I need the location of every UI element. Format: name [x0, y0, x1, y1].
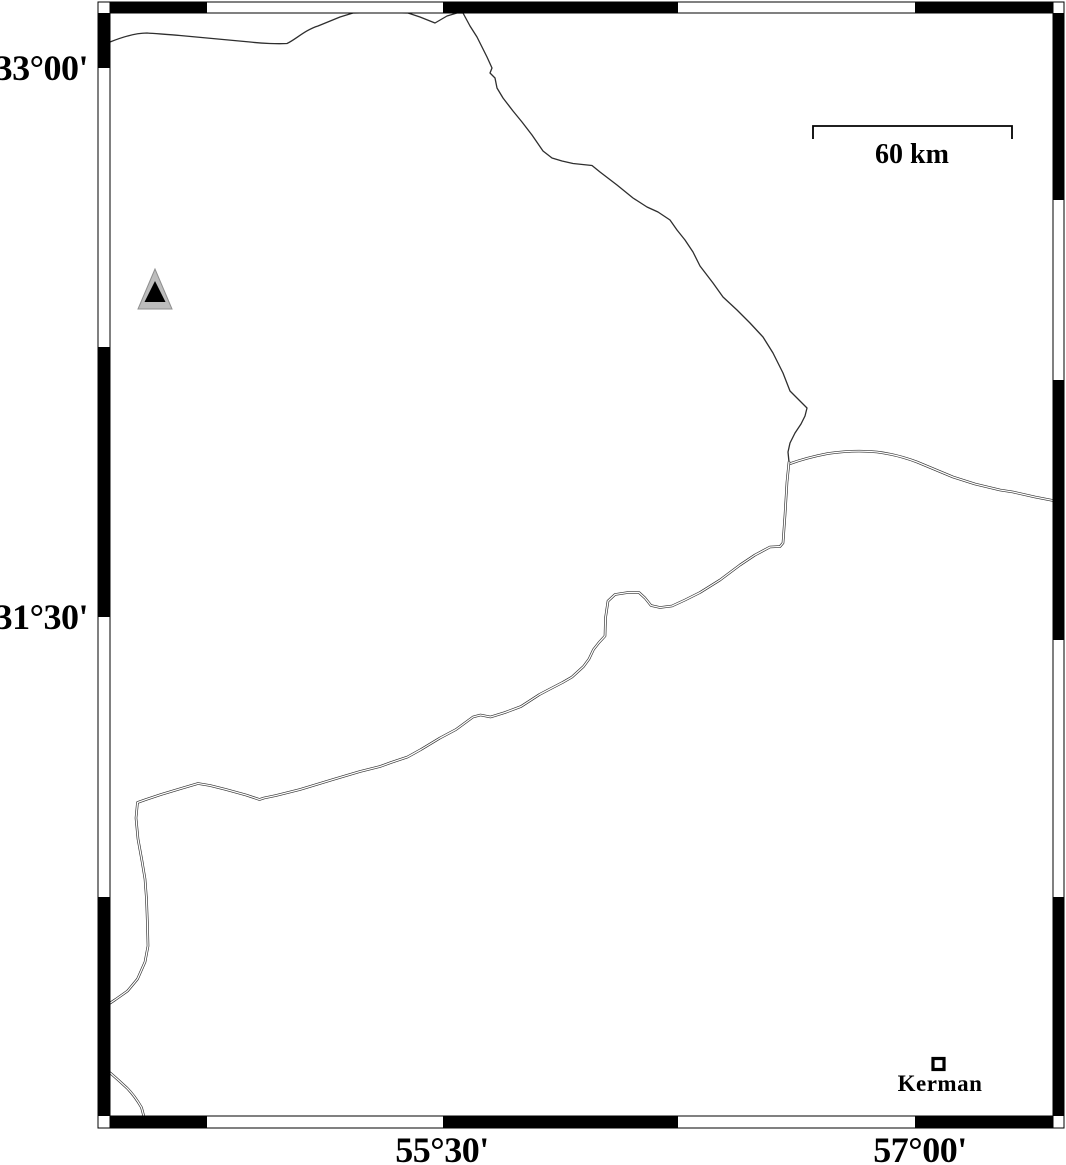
frame-segment [915, 2, 1053, 13]
frame-segment [98, 897, 110, 1116]
boundary-southwest [108, 462, 789, 1005]
scale-bar-label: 60 km [875, 141, 949, 169]
frame-segment [98, 13, 110, 68]
scale-bar [813, 126, 1012, 139]
left-axis-label-31-30: 31°30' [0, 599, 88, 635]
frame-segment [443, 2, 678, 13]
frame-segment [110, 2, 207, 13]
bottom-axis-label-55-30: 55°30' [395, 1132, 488, 1165]
boundary-lines [108, 13, 1053, 1116]
frame-segment [915, 1116, 1053, 1128]
boundary-east [789, 451, 1053, 500]
triangle-marker [138, 269, 172, 309]
frame-segment [443, 1116, 678, 1128]
kerman-city-label: Kerman [898, 1072, 983, 1095]
frame-segment [110, 1116, 207, 1128]
kerman-square-marker [933, 1059, 944, 1070]
frame-segment [1053, 897, 1064, 1116]
boundary-bottom-left [109, 1072, 144, 1116]
boundary-upper [110, 13, 807, 463]
left-axis-label-33-00: 33°00' [0, 50, 88, 86]
map-figure: 33°00' 31°30' 55°30' 57°00' 60 km Kerman [0, 0, 1066, 1165]
bottom-axis-label-57-00: 57°00' [873, 1132, 966, 1165]
map-frame [98, 2, 1064, 1128]
frame-segment [1053, 380, 1064, 640]
frame-segment [98, 347, 110, 617]
frame-segment [1053, 13, 1064, 200]
map-canvas [0, 0, 1066, 1165]
scale-bar-bracket [813, 126, 1012, 139]
